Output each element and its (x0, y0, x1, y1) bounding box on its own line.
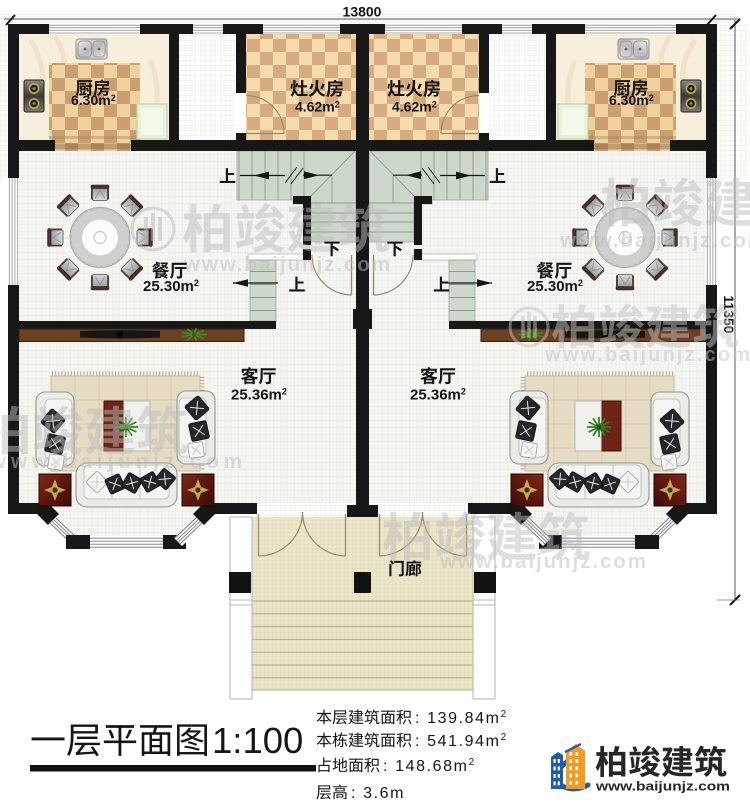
svg-text:: 148.68m2: : 148.68m2 (383, 757, 476, 775)
svg-text:6.30m2: 6.30m2 (609, 92, 654, 108)
svg-text:: 3.6m: : 3.6m (351, 785, 405, 802)
svg-text:25.30m2: 25.30m2 (143, 278, 199, 295)
svg-text:25.36m2: 25.36m2 (231, 387, 287, 404)
svg-text:4.62m2: 4.62m2 (295, 99, 340, 115)
svg-text:25.36m2: 25.36m2 (410, 387, 466, 404)
svg-text:6.30m2: 6.30m2 (71, 92, 116, 108)
svg-text:: 541.94m2: : 541.94m2 (415, 732, 508, 750)
svg-text:25.30m2: 25.30m2 (527, 278, 583, 295)
svg-text:www.baijunjz.com: www.baijunjz.com (595, 779, 730, 794)
svg-text:1:100: 1:100 (212, 720, 303, 761)
svg-text:: 139.84m2: : 139.84m2 (415, 709, 508, 727)
svg-text:13800: 13800 (343, 4, 382, 20)
svg-text:www.baijunjz.com: www.baijunjz.com (0, 450, 242, 473)
svg-text:4.62m2: 4.62m2 (392, 99, 437, 115)
